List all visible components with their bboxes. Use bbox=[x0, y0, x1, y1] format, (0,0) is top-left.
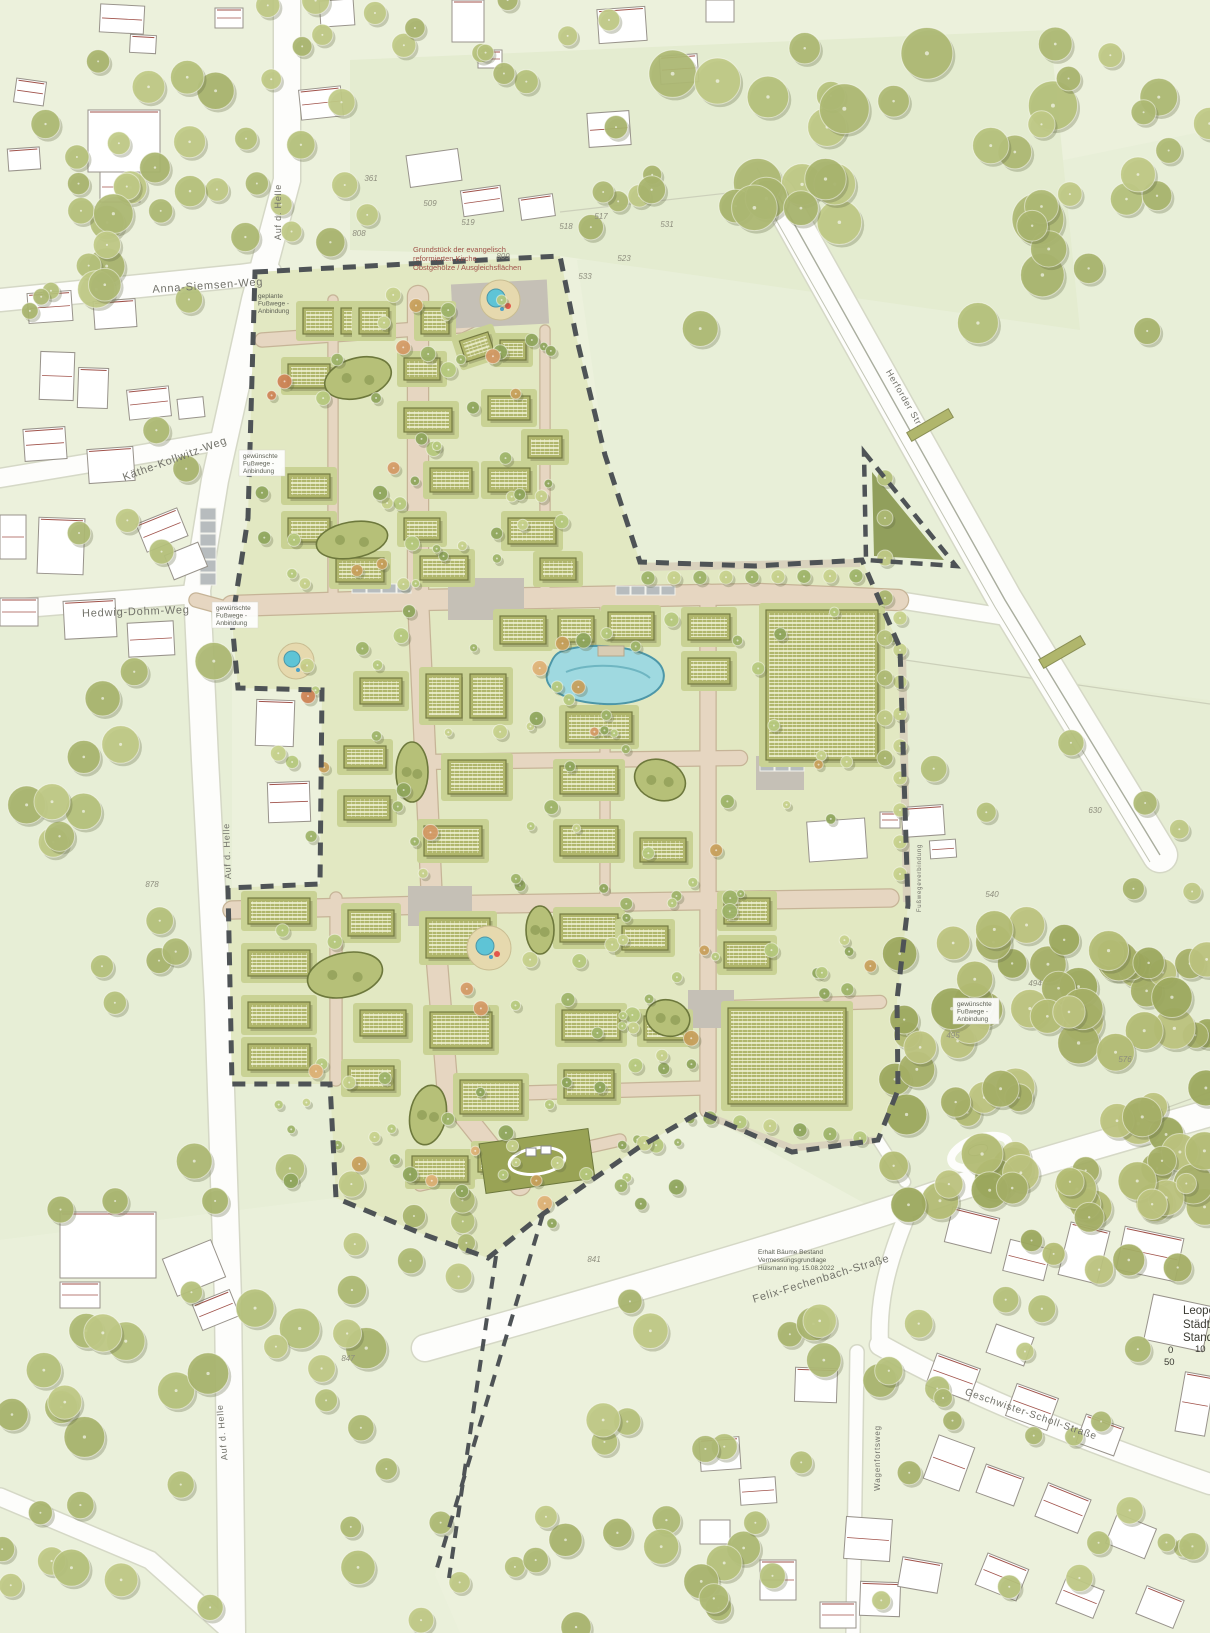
map-note: Grundstück der evangelisch bbox=[413, 245, 506, 254]
parcel-number: 841 bbox=[587, 1255, 600, 1264]
path-annotation: Anbindung bbox=[243, 468, 274, 475]
parcel-number: 809 bbox=[496, 252, 510, 261]
scale-tick: 10 bbox=[1195, 1344, 1206, 1355]
parcel-number: 808 bbox=[352, 229, 366, 238]
masterplan-map: Anna-Siemsen-WegKäthe-Kollwitz-WegHedwig… bbox=[0, 0, 1210, 1633]
parcel-number: 519 bbox=[461, 218, 475, 227]
map-note: Vermessungsgrundlage bbox=[758, 1257, 827, 1264]
path-annotation: Fußwege - bbox=[258, 301, 289, 308]
map-note: Erhalt Bäume Bestand bbox=[758, 1249, 823, 1256]
path-annotation: Anbindung bbox=[216, 620, 247, 627]
map-note: Obstgehölze / Ausgleichsflächen bbox=[413, 263, 521, 272]
parcel-number: 847 bbox=[341, 1354, 355, 1363]
street-label: Auf d. Helle bbox=[273, 184, 283, 240]
title-block: Leopo Städte Stand bbox=[1183, 1305, 1210, 1346]
map-note: Hülsmann Ing. 15.08.2022 bbox=[758, 1265, 835, 1272]
path-annotation: Anbindung bbox=[258, 308, 289, 315]
title-line: Leopo bbox=[1183, 1305, 1210, 1319]
path-annotation: gewünschte bbox=[216, 605, 251, 612]
parcel-number: 576 bbox=[1118, 1055, 1132, 1064]
path-annotation: gewünschte bbox=[243, 453, 278, 460]
path-annotation: gewünschte bbox=[957, 1001, 992, 1008]
path-annotation: Fußwege - bbox=[957, 1009, 988, 1016]
path-annotation: Fußwege - bbox=[216, 613, 247, 620]
title-line: Städte bbox=[1183, 1319, 1210, 1333]
scale-tick: 50 bbox=[1164, 1357, 1175, 1368]
parcel-number: 533 bbox=[578, 272, 592, 281]
parcel-number: 630 bbox=[1088, 806, 1102, 815]
parcel-number: 495 bbox=[946, 1031, 960, 1040]
masterplan-svg: Anna-Siemsen-WegKäthe-Kollwitz-WegHedwig… bbox=[0, 0, 1210, 1633]
parcel-number: 361 bbox=[364, 174, 377, 183]
parcel-number: 509 bbox=[423, 199, 437, 208]
path-annotation: Fußwege - bbox=[243, 461, 274, 468]
street-label: Auf d. Helle bbox=[221, 823, 233, 879]
parcel-number: 517 bbox=[594, 212, 608, 221]
path-annotation: geplante bbox=[258, 293, 283, 300]
street-label: Wagenfortsweg bbox=[873, 1425, 882, 1491]
street-label: Fußwegeverbindung bbox=[917, 844, 923, 912]
parcel-number: 523 bbox=[617, 254, 631, 263]
parcel-number: 540 bbox=[985, 890, 999, 899]
map-note: reformierten Kirche bbox=[413, 254, 477, 263]
parcel-number: 531 bbox=[660, 220, 673, 229]
scale-tick: 0 bbox=[1168, 1345, 1173, 1356]
parcel-number: 494 bbox=[1028, 979, 1042, 988]
path-annotation: Anbindung bbox=[957, 1016, 988, 1023]
parcel-number: 518 bbox=[559, 222, 573, 231]
parcel-number: 878 bbox=[145, 880, 159, 889]
